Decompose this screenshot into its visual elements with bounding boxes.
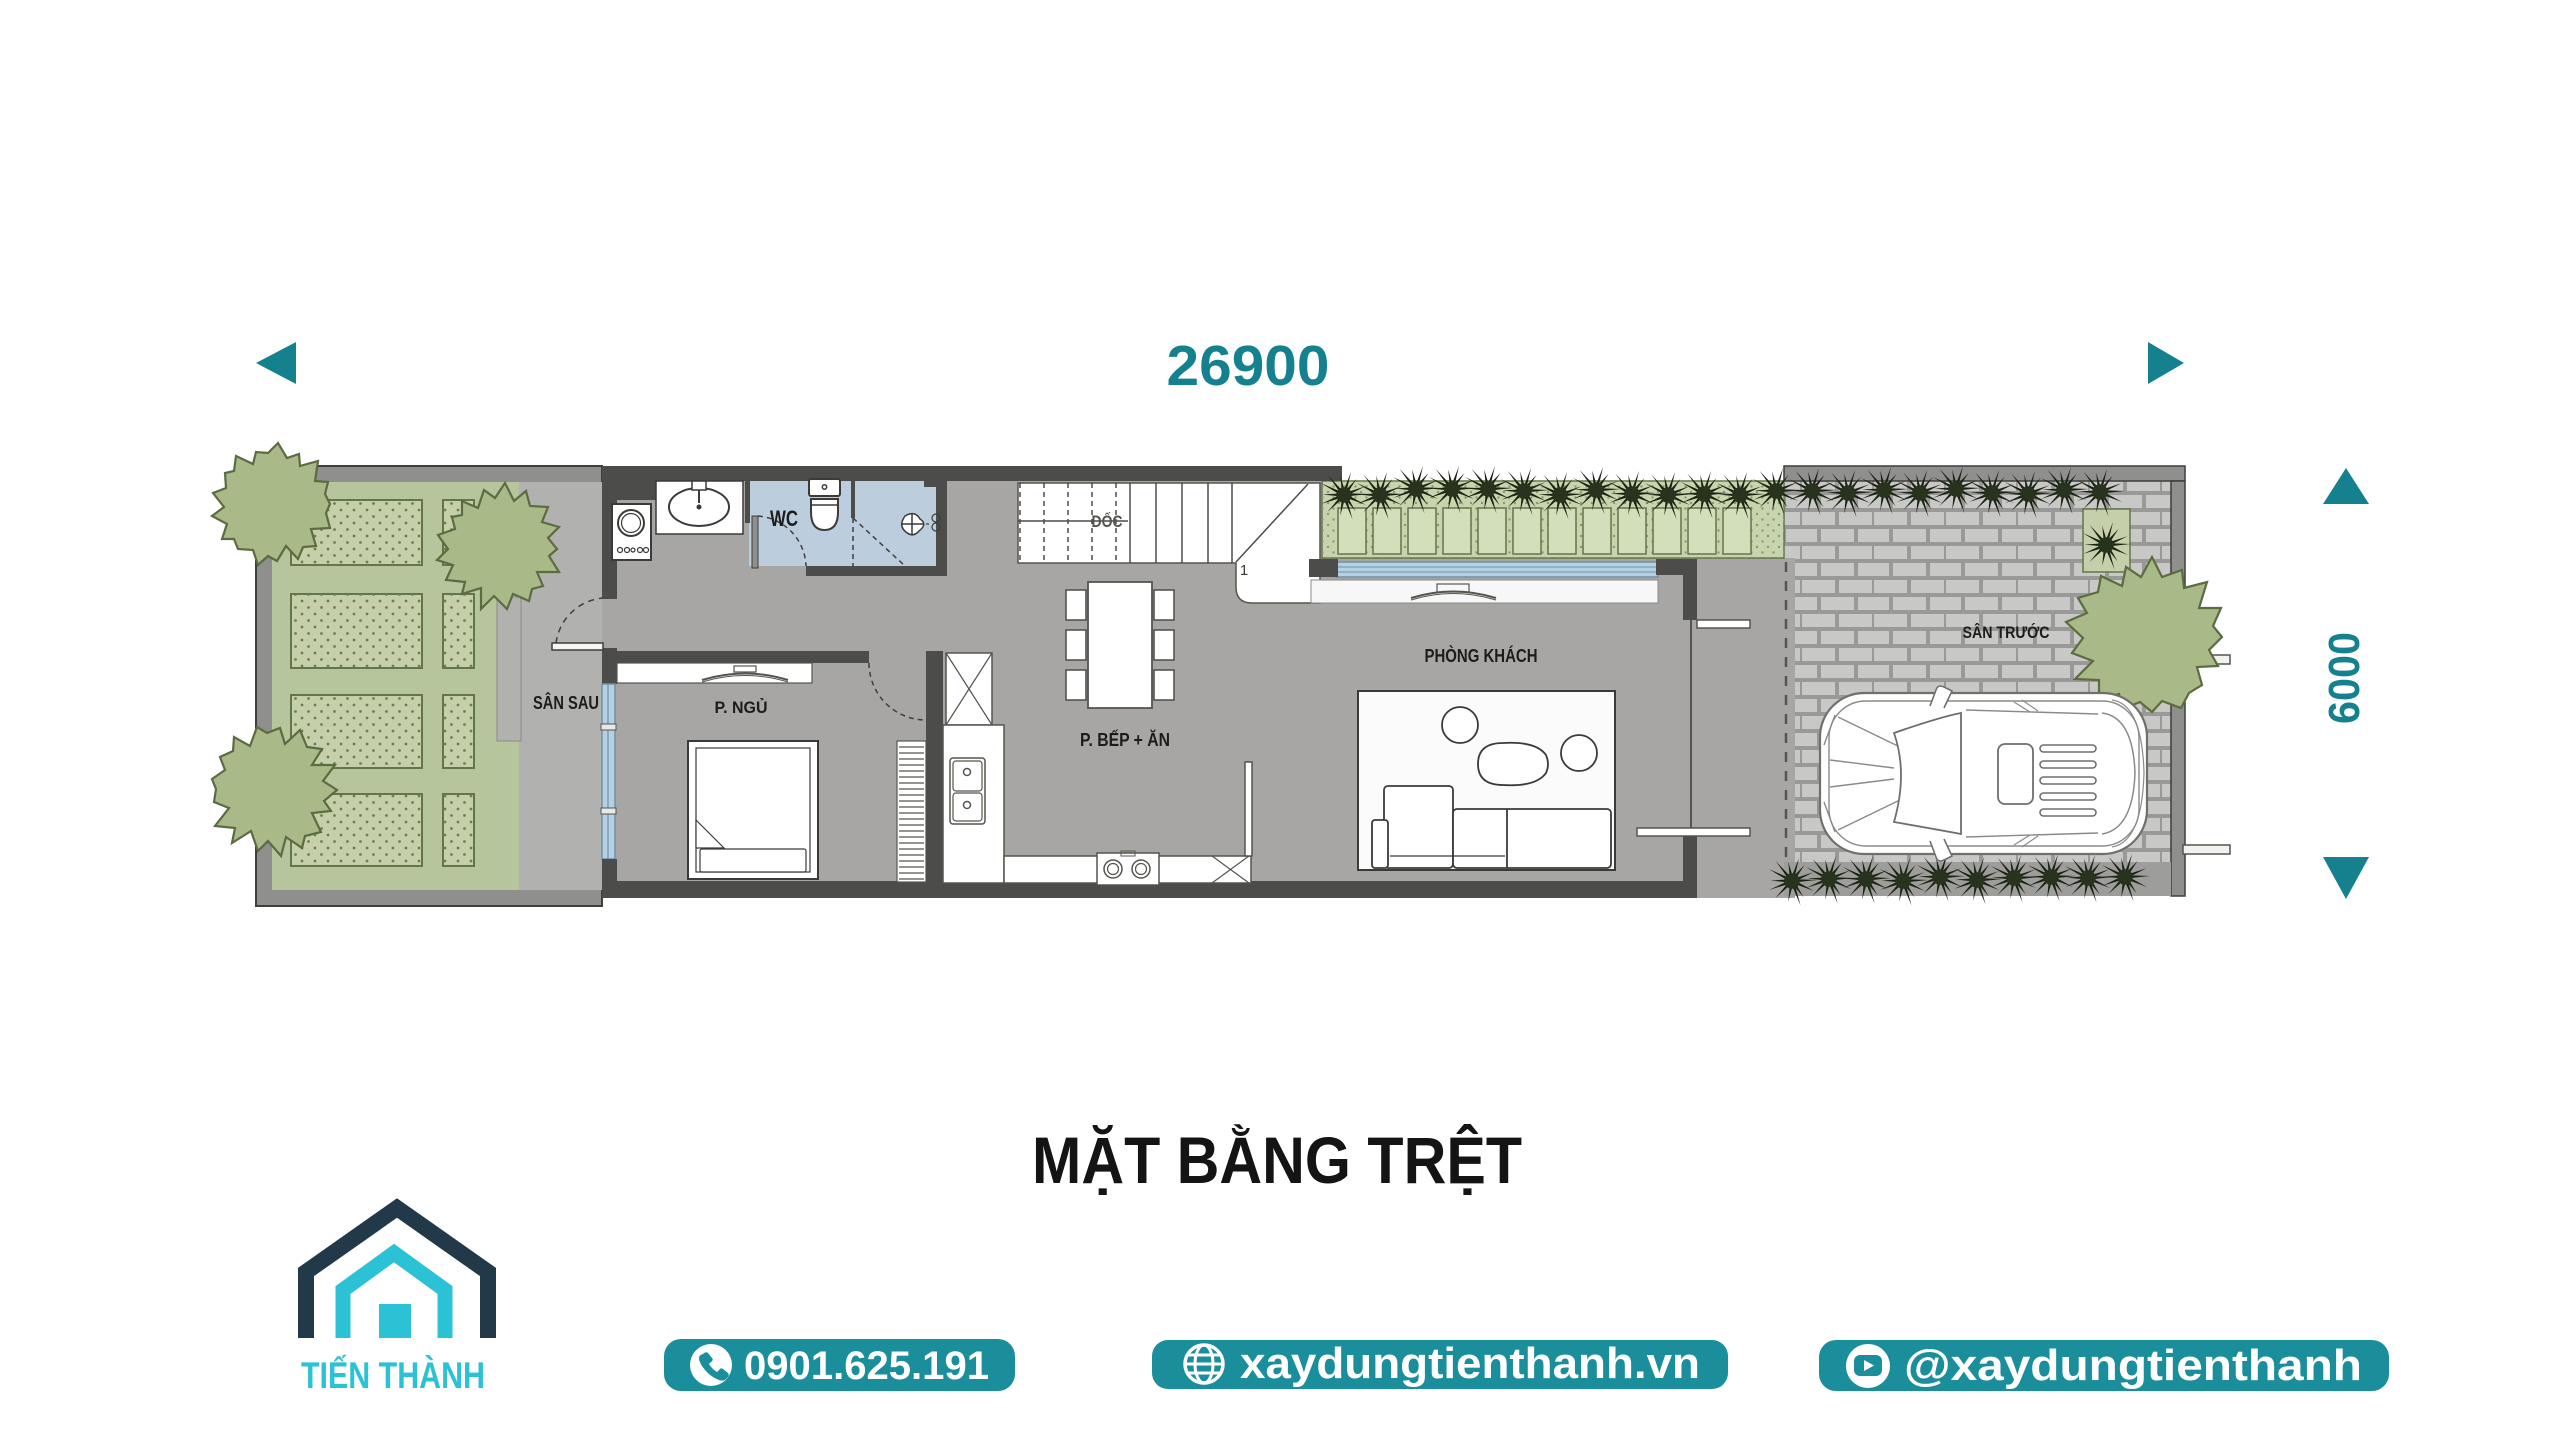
svg-text:DỐC: DỐC [1092, 511, 1123, 531]
svg-text:26900: 26900 [1167, 334, 1330, 398]
svg-text:PHÒNG KHÁCH: PHÒNG KHÁCH [1425, 645, 1538, 666]
svg-text:SÂN SAU: SÂN SAU [533, 692, 599, 713]
svg-text:xaydungtienthanh.vn: xaydungtienthanh.vn [1240, 1339, 1700, 1388]
svg-text:P. BẾP + ĂN: P. BẾP + ĂN [1080, 729, 1170, 750]
svg-text:0901.625.191: 0901.625.191 [744, 1344, 989, 1388]
svg-text:TIẾN THÀNH: TIẾN THÀNH [301, 1355, 485, 1396]
svg-text:SÂN TRƯỚC: SÂN TRƯỚC [1963, 623, 2050, 642]
svg-text:WC: WC [770, 506, 798, 531]
svg-text:MẶT BẰNG TRỆT: MẶT BẰNG TRỆT [1032, 1123, 1522, 1197]
svg-text:6000: 6000 [2320, 632, 2369, 724]
svg-text:P. NGỦ: P. NGỦ [715, 698, 768, 717]
svg-text:1: 1 [1240, 562, 1248, 579]
svg-text:@xaydungtienthanh: @xaydungtienthanh [1904, 1341, 2362, 1390]
